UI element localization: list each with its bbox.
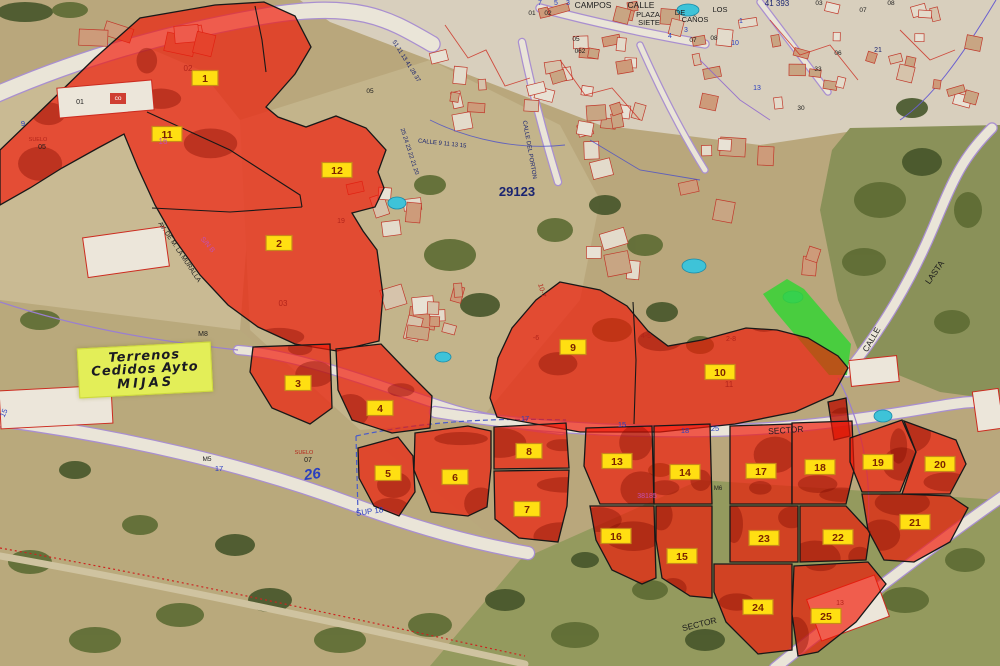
shade-blob (749, 481, 772, 495)
parcel-label-2[interactable]: 2 (266, 236, 292, 251)
shade-blob (137, 48, 158, 74)
parcel-label-8[interactable]: 8 (516, 444, 542, 459)
tree-cluster (122, 515, 158, 535)
building (586, 246, 601, 258)
map-annotation: 07 (689, 37, 697, 44)
parcel-label-7[interactable]: 7 (514, 502, 540, 517)
parcel-label-number: 16 (610, 531, 622, 543)
parcel-label-22[interactable]: 22 (823, 530, 853, 545)
building (774, 97, 784, 109)
map-annotation: 21 (874, 47, 882, 54)
shade-blob (546, 439, 578, 451)
map-annotation: 17 (215, 464, 223, 473)
map-annotation: 15 (618, 420, 626, 429)
building (713, 199, 736, 223)
map-annotation: 03 (815, 0, 823, 7)
parcel-label-number: 8 (526, 446, 532, 458)
building (718, 139, 732, 152)
map-annotation: M5 (202, 456, 211, 463)
map-annotation: co (115, 95, 122, 102)
building (586, 105, 606, 121)
map-annotation: 11 (725, 380, 734, 389)
building (467, 103, 485, 113)
map-annotation: 25 (711, 424, 719, 433)
parcel-label-12[interactable]: 12 (322, 163, 352, 178)
map-annotation: CAÑOS (682, 15, 709, 24)
tree-cluster (69, 627, 121, 653)
building (616, 59, 634, 74)
map-annotation: M6 (714, 486, 723, 492)
tree-cluster (685, 629, 725, 651)
parcel-label-13[interactable]: 13 (602, 454, 632, 469)
parcel-label-17[interactable]: 17 (746, 464, 776, 479)
swimming-pool (388, 197, 406, 209)
parcel-label-number: 15 (676, 551, 688, 563)
parcel-label-1[interactable]: 1 (192, 71, 218, 86)
map-viewport: 1111223491056871316141517231822192021242… (0, 0, 1000, 666)
map-annotation: 10 (731, 40, 739, 47)
map-annotation: 4-5 (641, 333, 651, 340)
map-annotation: 29123 (499, 184, 535, 199)
building (915, 34, 924, 42)
tree-cluster (945, 548, 985, 572)
map-annotation: 26 (302, 465, 323, 484)
parcel-label-number: 13 (611, 456, 623, 468)
map-annotation: 33 (814, 66, 822, 73)
building (588, 48, 600, 59)
map-annotation: 17 (521, 414, 529, 423)
tree-cluster (551, 622, 599, 648)
building (896, 64, 915, 83)
building (757, 146, 774, 166)
parcel-label-number: 22 (832, 532, 844, 544)
parcel-label-number: 5 (385, 468, 391, 480)
map-annotation: 16 (159, 137, 168, 146)
parcel-label-23[interactable]: 23 (749, 531, 779, 546)
parcel-label-5[interactable]: 5 (375, 466, 401, 481)
building (616, 37, 626, 51)
tree-cluster (954, 192, 982, 228)
map-annotation: 1 (739, 18, 743, 25)
map-annotation: 05 (366, 88, 374, 95)
shade-blob (798, 475, 838, 493)
building-large (849, 356, 899, 387)
building (604, 251, 632, 277)
parcel-label-3[interactable]: 3 (285, 376, 311, 391)
map-annotation: -6 (533, 335, 539, 342)
building (430, 316, 440, 326)
tree-cluster (20, 310, 60, 330)
building (833, 32, 840, 41)
map-annotation: 4 (668, 33, 672, 40)
parcel-label-4[interactable]: 4 (367, 401, 393, 416)
map-annotation: 19 (337, 218, 345, 225)
map-annotation: SIETE (638, 18, 660, 27)
map-annotation: LOS (712, 5, 727, 14)
map-annotation: 07 (304, 457, 312, 464)
tree-cluster (424, 239, 476, 271)
map-annotation: 05 (38, 144, 46, 151)
handwritten-note: Terrenos Cedidos Ayto MIJAS (77, 342, 213, 399)
tree-cluster (52, 2, 88, 18)
parcel-label-number: 7 (524, 504, 530, 516)
map-annotation: 01 (76, 99, 84, 106)
building (427, 302, 439, 315)
map-annotation: 3 (684, 27, 688, 34)
tree-cluster (408, 613, 452, 637)
parcel-label-6[interactable]: 6 (442, 470, 468, 485)
building (524, 100, 539, 112)
map-annotation: 9 (21, 119, 25, 128)
parcel-label-number: 24 (752, 602, 764, 614)
parcel-label-number: 18 (814, 462, 826, 474)
building (589, 158, 613, 180)
parcel-label-number: 10 (714, 367, 726, 379)
parcel-label-number: 4 (377, 403, 383, 415)
parcel-label-19[interactable]: 19 (863, 455, 893, 470)
map-annotation: 05 (572, 36, 580, 43)
tree-cluster (934, 310, 970, 334)
parcel-label-number: 12 (331, 165, 343, 177)
tree-cluster (627, 234, 663, 256)
map-annotation: 02 (184, 64, 193, 73)
building (699, 93, 718, 111)
parcel-label-number: 6 (452, 472, 458, 484)
map-annotation: 01 (528, 10, 536, 17)
building (478, 79, 486, 90)
tree-cluster (485, 589, 525, 611)
building (599, 227, 628, 250)
map-canvas: 1111223491056871316141517231822192021242… (0, 0, 1000, 666)
building (823, 80, 838, 90)
map-annotation: SUELO (295, 450, 314, 456)
building (918, 10, 931, 18)
tree-cluster (632, 580, 668, 600)
parcel-label-14[interactable]: 14 (670, 465, 700, 480)
building (771, 34, 781, 47)
building (576, 121, 593, 137)
map-annotation: 5 (554, 0, 558, 7)
shade-blob (537, 477, 595, 493)
building (406, 325, 429, 341)
tree-cluster (215, 534, 255, 556)
parcel-label-21[interactable]: 21 (900, 515, 930, 530)
map-annotation: 30 (797, 105, 805, 112)
tree-cluster (0, 2, 53, 22)
map-annotation: 13 (836, 600, 844, 607)
shade-blob (538, 352, 577, 375)
map-annotation: 08 (887, 0, 895, 7)
parcel-label-24[interactable]: 24 (743, 600, 773, 615)
map-annotation: 02 (544, 10, 552, 17)
map-annotation: 3 (566, 0, 570, 7)
parcel-label-number: 20 (934, 459, 946, 471)
parcel-label-18[interactable]: 18 (805, 460, 835, 475)
map-annotation: 7 (538, 0, 542, 7)
map-annotation: 06 (834, 50, 842, 57)
map-annotation: 13 (753, 85, 761, 92)
map-annotation: 03 (279, 299, 288, 308)
building (789, 64, 806, 76)
building (452, 112, 473, 132)
parcel-label-number: 25 (820, 611, 832, 623)
building (701, 145, 711, 156)
map-annotation: 08 (710, 35, 718, 42)
building (450, 92, 460, 103)
swimming-pool (874, 410, 892, 422)
shade-blob (434, 432, 488, 445)
building (933, 79, 941, 89)
parcel-label-15[interactable]: 15 (667, 549, 697, 564)
parcel-label-number: 1 (202, 73, 208, 85)
map-annotation: 2-8 (726, 336, 736, 343)
parcel-label-number: 2 (276, 238, 282, 250)
tree-cluster (842, 248, 886, 276)
parcel-label-number: 9 (570, 342, 576, 354)
tree-cluster (156, 603, 204, 627)
tree-cluster (881, 587, 929, 613)
building (405, 202, 421, 223)
map-annotation: 38185 (637, 493, 657, 500)
building (454, 283, 463, 297)
parcel-label-10[interactable]: 10 (705, 365, 735, 380)
map-annotation: CALLE (628, 0, 655, 10)
map-annotation: M8 (198, 331, 208, 338)
parcel-label-number: 17 (755, 466, 767, 478)
parcel-label-20[interactable]: 20 (925, 457, 955, 472)
map-annotation: 062 (575, 48, 586, 55)
note-line-2: MIJAS (117, 375, 175, 392)
tree-cluster (460, 293, 500, 317)
tree-cluster (854, 182, 906, 218)
building (381, 220, 401, 237)
tree-cluster (537, 218, 573, 242)
parcel-label-25[interactable]: 25 (811, 609, 841, 624)
parcel-label-16[interactable]: 16 (601, 529, 631, 544)
tree-cluster (902, 148, 942, 176)
tree-cluster (414, 175, 446, 195)
swimming-pool (682, 259, 706, 273)
map-annotation: SUELO (29, 137, 48, 143)
map-annotation: 41 393 (765, 0, 790, 8)
building (678, 179, 699, 195)
parcel-label-9[interactable]: 9 (560, 340, 586, 355)
map-annotation: 07 (859, 7, 867, 14)
building (79, 29, 108, 46)
tree-cluster (571, 552, 599, 568)
tree-cluster (589, 195, 621, 215)
map-annotation: 18 (681, 426, 689, 435)
shade-blob (464, 487, 497, 519)
parcel-label-number: 19 (872, 457, 884, 469)
parcel-label-number: 3 (295, 378, 301, 390)
building (965, 35, 983, 52)
swimming-pool (435, 352, 451, 362)
shade-blob (388, 383, 415, 396)
shade-blob (923, 473, 970, 492)
parcel-label-number: 14 (679, 467, 691, 479)
parcel-label-number: 23 (758, 533, 770, 545)
tree-cluster (59, 461, 91, 479)
building (453, 66, 467, 84)
building-large (972, 388, 1000, 431)
parcel-label-number: 21 (909, 517, 921, 529)
map-annotation: CAMPOS (575, 0, 612, 10)
tree-cluster (646, 302, 678, 322)
